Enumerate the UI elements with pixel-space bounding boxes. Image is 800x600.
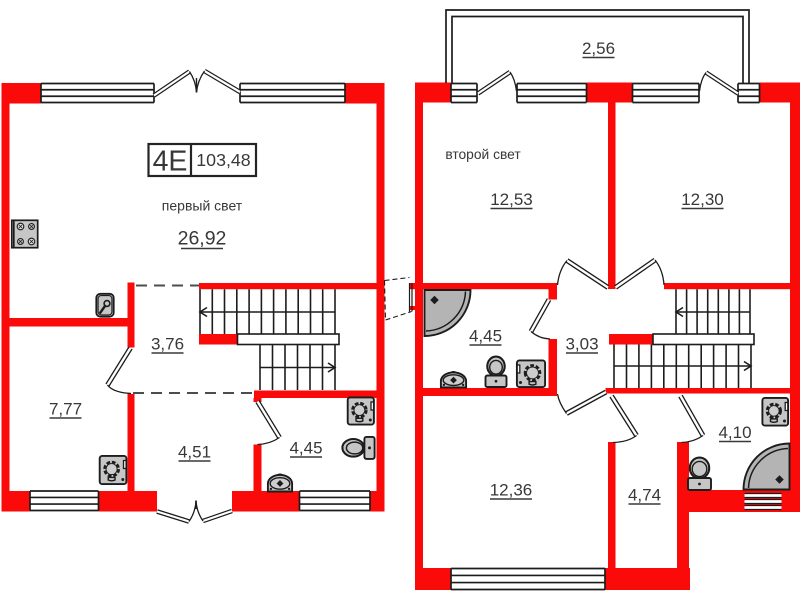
svg-text:4,10: 4,10: [718, 423, 751, 442]
svg-text:26,92: 26,92: [178, 228, 227, 250]
svg-text:3,03: 3,03: [565, 335, 598, 354]
svg-text:2,56: 2,56: [582, 39, 615, 58]
svg-text:4,45: 4,45: [289, 439, 322, 458]
svg-text:4E: 4E: [153, 146, 188, 178]
svg-text:103,48: 103,48: [196, 150, 250, 170]
svg-text:4,51: 4,51: [178, 443, 211, 462]
svg-text:второй свет: второй свет: [445, 147, 521, 162]
svg-text:первый свет: первый свет: [162, 198, 243, 214]
svg-text:7,77: 7,77: [49, 400, 82, 419]
svg-text:4,74: 4,74: [628, 486, 661, 505]
svg-text:12,30: 12,30: [681, 190, 724, 209]
svg-text:12,53: 12,53: [490, 190, 533, 209]
svg-text:4,45: 4,45: [469, 327, 502, 346]
svg-text:3,76: 3,76: [151, 335, 184, 354]
svg-text:12,36: 12,36: [490, 481, 533, 500]
